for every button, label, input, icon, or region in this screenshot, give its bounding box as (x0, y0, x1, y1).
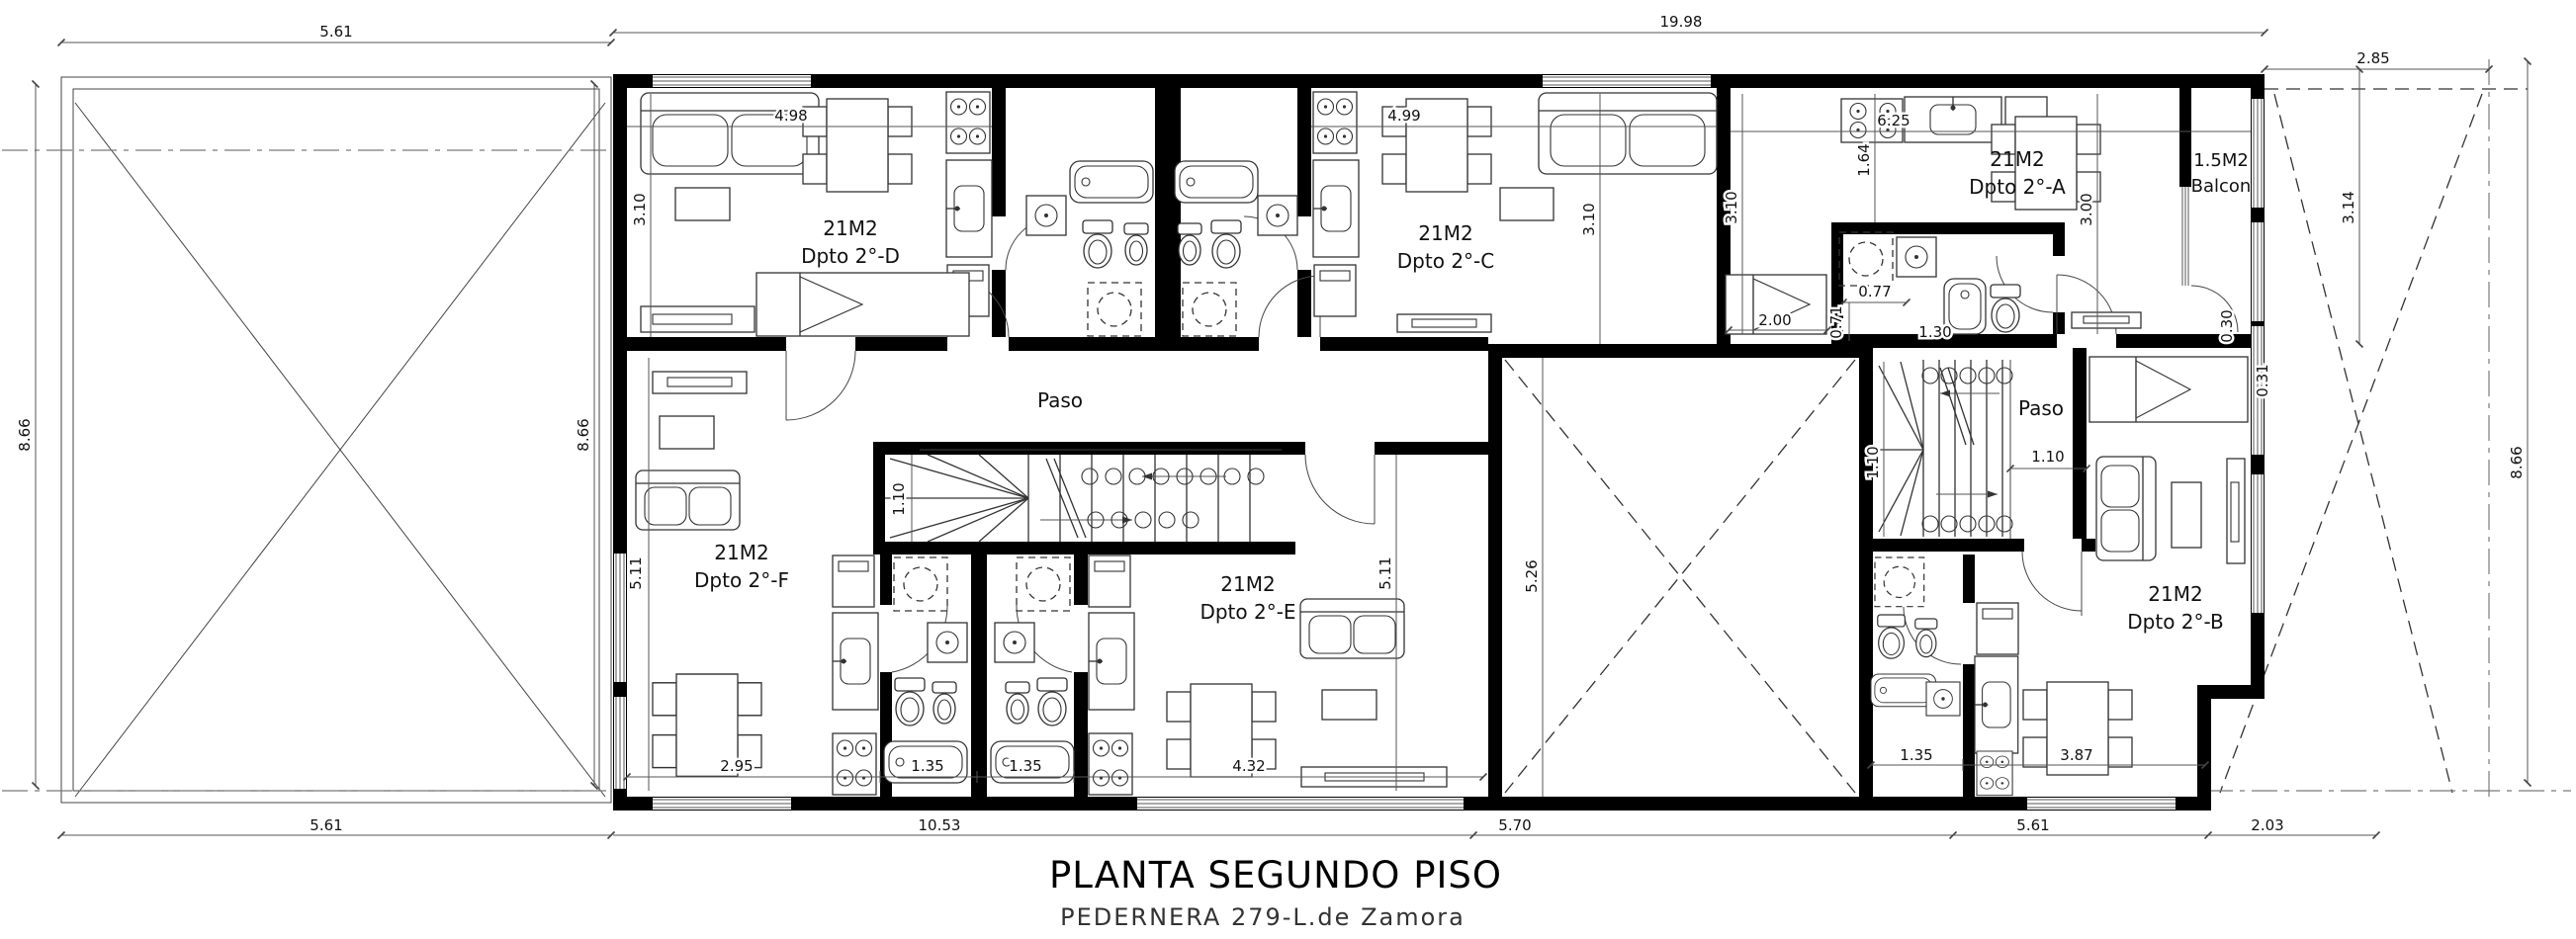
dim-a-bath-width: 0.77 (1858, 283, 1891, 300)
tv-cabinet-b (2227, 459, 2245, 563)
page-subtitle: PEDERNERA 279-L.de Zamora (1060, 903, 1466, 931)
label-f-name: Dpto 2°-F (694, 568, 789, 592)
bath-c (1175, 161, 1297, 336)
dim-patio-depth: 5.26 (1523, 559, 1541, 592)
dim-terrace-left: 8.66 (16, 418, 34, 451)
label-d-area: 21M2 (823, 216, 877, 240)
dim-f-table: 2.95 (720, 757, 753, 775)
dim-e-width: 4.32 (1232, 757, 1265, 775)
dim-yard-right: 8.66 (2508, 446, 2526, 478)
stairs-right (1873, 360, 2012, 539)
label-a-area: 21M2 (1990, 147, 2044, 171)
label-balcony-area: 1.5M2 (2193, 150, 2249, 171)
label-d-name: Dpto 2°-D (801, 244, 900, 268)
dim-a-width: 6.25 (1877, 112, 1910, 129)
dim-d-width: 4.98 (774, 107, 807, 125)
room-labels: 21M2 Dpto 2°-D 21M2 Dpto 2°-C 21M2 Dpto … (694, 147, 2251, 634)
label-a-name: Dpto 2°-A (1969, 175, 2066, 199)
bath-d (1026, 161, 1153, 336)
dim-d-depth: 3.10 (631, 193, 649, 225)
dim-a-kitchen: 1.64 (1855, 143, 1873, 176)
dim-a-left-depth: 3.10 (1723, 191, 1740, 223)
dim-b-bath-width: 1.35 (1900, 746, 1932, 764)
label-f-area: 21M2 (714, 541, 768, 564)
dim-f-depth: 5.11 (627, 556, 645, 589)
dim-stair-right-width: 1.10 (1864, 446, 1882, 478)
dim-building-top: 19.98 (1660, 13, 1703, 31)
dim-bottom-center: 5.70 (1498, 816, 1531, 834)
patio-court (1505, 360, 1855, 793)
floor-plan-drawing: 5.61 19.98 2.85 8.66 8.66 8.66 3.14 4.98… (0, 0, 2576, 939)
label-hall-left: Paso (1037, 388, 1083, 412)
stairs-left (885, 450, 1282, 542)
dim-e-bath-width: 1.35 (1009, 757, 1041, 775)
bath-f (884, 557, 967, 783)
tv-cabinet-c (1397, 314, 1491, 332)
dim-bottom-right: 5.61 (2016, 816, 2049, 834)
dresser-d (641, 306, 755, 332)
bath-b (1871, 557, 1960, 716)
dim-yard-top: 2.85 (2356, 49, 2389, 67)
dim-building-left: 8.66 (575, 418, 592, 451)
label-hall-right: Paso (2018, 396, 2064, 420)
bath-e (991, 557, 1074, 783)
dim-a-bath-tub: 1.30 (1918, 323, 1951, 341)
label-b-area: 21M2 (2148, 582, 2202, 606)
dim-c-depth: 3.10 (1580, 203, 1598, 235)
label-e-name: Dpto 2°-E (1199, 600, 1295, 624)
dim-terrace-top: 5.61 (319, 23, 352, 41)
dim-bottom-terrace: 5.61 (310, 816, 342, 834)
apartment-d-furniture (641, 92, 992, 336)
dim-f-bath-width: 1.35 (911, 757, 943, 775)
page-title: PLANTA SEGUNDO PISO (1049, 854, 1502, 896)
bed-b (2089, 357, 2248, 422)
label-b-name: Dpto 2°-B (2127, 610, 2223, 634)
dim-balcony-wall: 0.31 (2254, 364, 2271, 396)
bed-d (756, 273, 969, 336)
terrace-left (61, 77, 611, 803)
dim-b-width: 3.87 (2060, 746, 2092, 764)
tv-cabinet-a (2072, 312, 2141, 328)
dim-bottom-yard: 2.03 (2251, 816, 2283, 834)
label-balcony-name: Balcon (2191, 176, 2252, 197)
label-e-area: 21M2 (1220, 572, 1275, 596)
label-c-name: Dpto 2°-C (1397, 249, 1494, 273)
floor-plan-sheet: 5.61 19.98 2.85 8.66 8.66 8.66 3.14 4.98… (0, 0, 2576, 939)
dimension-lines (36, 33, 2528, 835)
dim-a-right-depth: 3.00 (2078, 193, 2095, 225)
dim-c-width: 4.99 (1387, 107, 1420, 125)
dim-a-bed: 2.00 (1758, 311, 1791, 329)
dim-balcony-door: 0.30 (2218, 309, 2236, 342)
dim-stair-left-width: 1.10 (890, 482, 908, 515)
tv-cabinet-f (653, 372, 747, 393)
dim-a-bath-depth: 0.71 (1827, 305, 1845, 338)
apartment-c-furniture (1313, 92, 1717, 332)
dim-hall-right-width: 1.10 (2031, 448, 2064, 466)
dim-bottom-left: 10.53 (919, 816, 961, 834)
dim-yard-height: 3.14 (2340, 191, 2357, 223)
label-c-area: 21M2 (1418, 221, 1472, 245)
dim-e-depth: 5.11 (1377, 556, 1394, 589)
